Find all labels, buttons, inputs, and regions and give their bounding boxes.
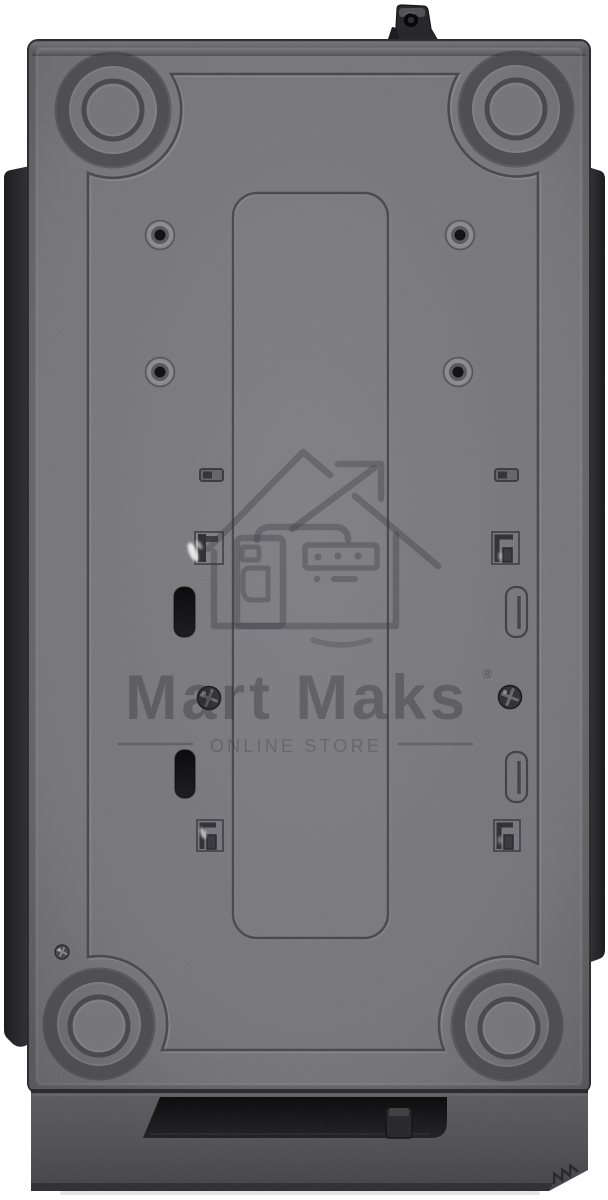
thumbscrew-bracket (388, 5, 438, 41)
side-panel-edge-left (4, 166, 30, 1047)
ground-shadow (60, 1191, 540, 1195)
product-photo-pc-case-bottom: Mart Maks ® ONLINE STORE (0, 0, 608, 1200)
surface-texture (28, 40, 590, 1192)
